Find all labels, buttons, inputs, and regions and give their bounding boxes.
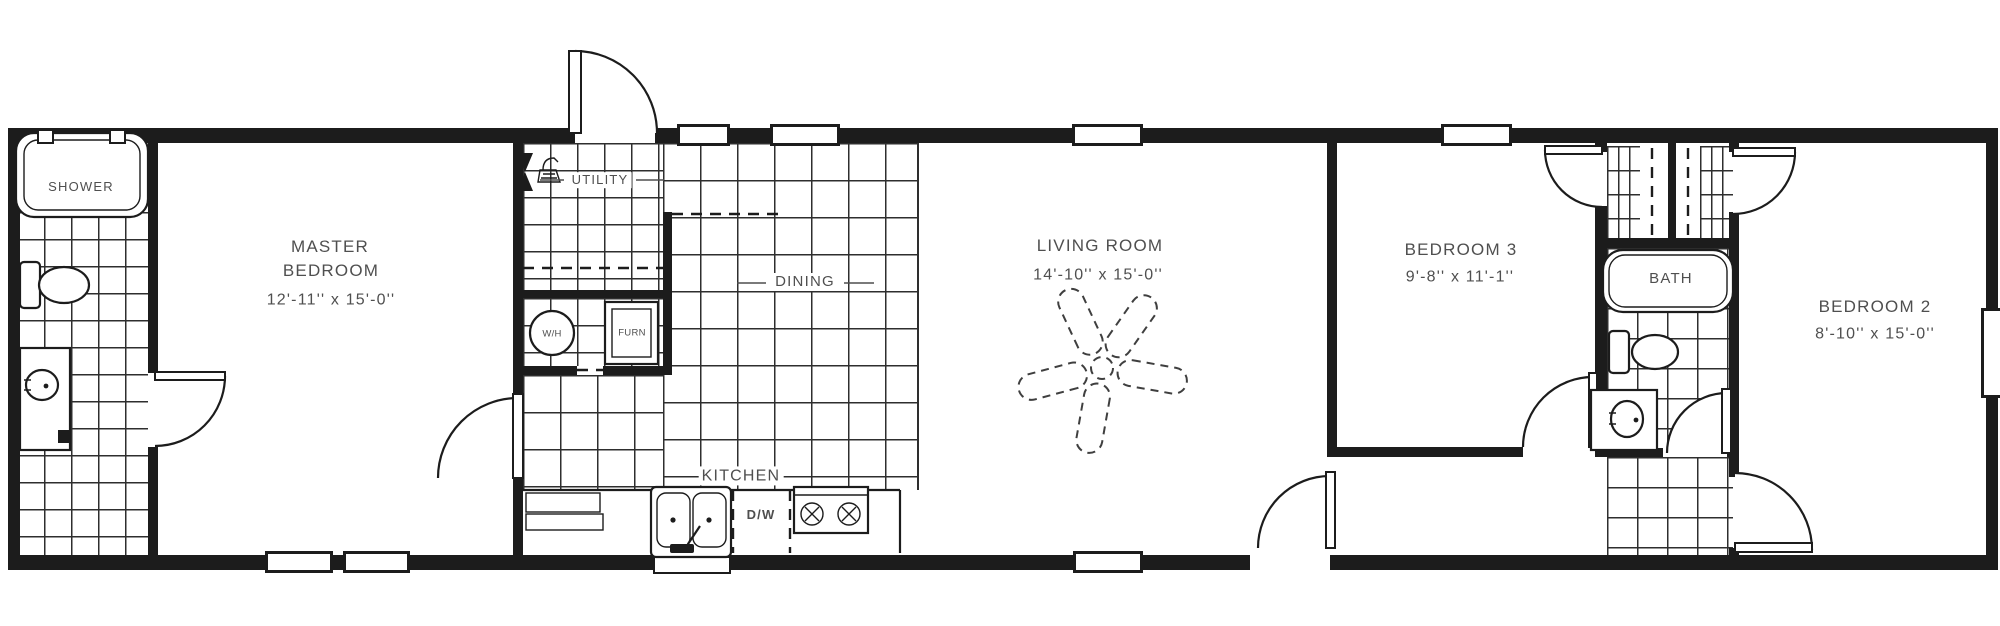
master-bath-door — [155, 372, 225, 446]
master-bedroom-door — [438, 394, 523, 478]
bath-vanity-icon — [1591, 390, 1657, 450]
water-heater-label: W/H — [541, 328, 562, 339]
shower-wall-notch-right — [110, 130, 125, 143]
bedroom2-door — [1735, 473, 1812, 552]
furnace-label: FURN — [617, 327, 647, 338]
bedroom3-closet-door — [1545, 146, 1602, 207]
vanity-corner-block — [58, 430, 70, 443]
bedroom3-door — [1523, 373, 1597, 447]
bath-door — [1667, 389, 1731, 453]
utility-exterior-door — [569, 51, 657, 133]
bedroom3-label: BEDROOM 3 — [1402, 240, 1521, 260]
master-bedroom-label-1: MASTER — [288, 237, 372, 257]
master-toilet-icon — [20, 262, 89, 308]
dishwasher-label: D/W — [744, 507, 779, 523]
bath-toilet-icon — [1609, 331, 1678, 373]
fixtures-overlay — [0, 0, 2000, 626]
bedroom2-dims: 8'-10'' x 15'-0'' — [1812, 324, 1938, 343]
master-bedroom-dims: 12'-11'' x 15'-0'' — [264, 290, 399, 309]
range-icon — [794, 487, 868, 533]
shower-unit — [16, 130, 148, 217]
kitchen-sink-icon — [651, 487, 731, 573]
bedroom2-label: BEDROOM 2 — [1816, 297, 1935, 317]
sink-bay-window — [654, 557, 730, 573]
bath-label: BATH — [1646, 270, 1696, 288]
utility-label: UTILITY — [569, 172, 632, 188]
washer-hookup-icon — [517, 153, 560, 191]
shower-wall-notch-left — [38, 130, 53, 143]
master-vanity-icon — [20, 348, 70, 450]
bedroom3-dims: 9'-8'' x 11'-1'' — [1403, 267, 1517, 286]
shower-label: SHOWER — [45, 179, 117, 195]
kitchen-label: KITCHEN — [699, 466, 784, 485]
living-room-exterior-door — [1258, 472, 1335, 548]
master-bedroom-label-2: BEDROOM — [280, 261, 382, 281]
ceiling-fan-icon — [1016, 285, 1189, 455]
living-room-label: LIVING ROOM — [1034, 236, 1167, 256]
dining-label: DINING — [772, 273, 838, 291]
living-room-dims: 14'-10'' x 15'-0'' — [1030, 265, 1166, 284]
floor-plan: SHOWER MASTER BEDROOM 12'-11'' x 15'-0''… — [0, 0, 2000, 626]
bedroom2-closet-door — [1733, 148, 1795, 214]
